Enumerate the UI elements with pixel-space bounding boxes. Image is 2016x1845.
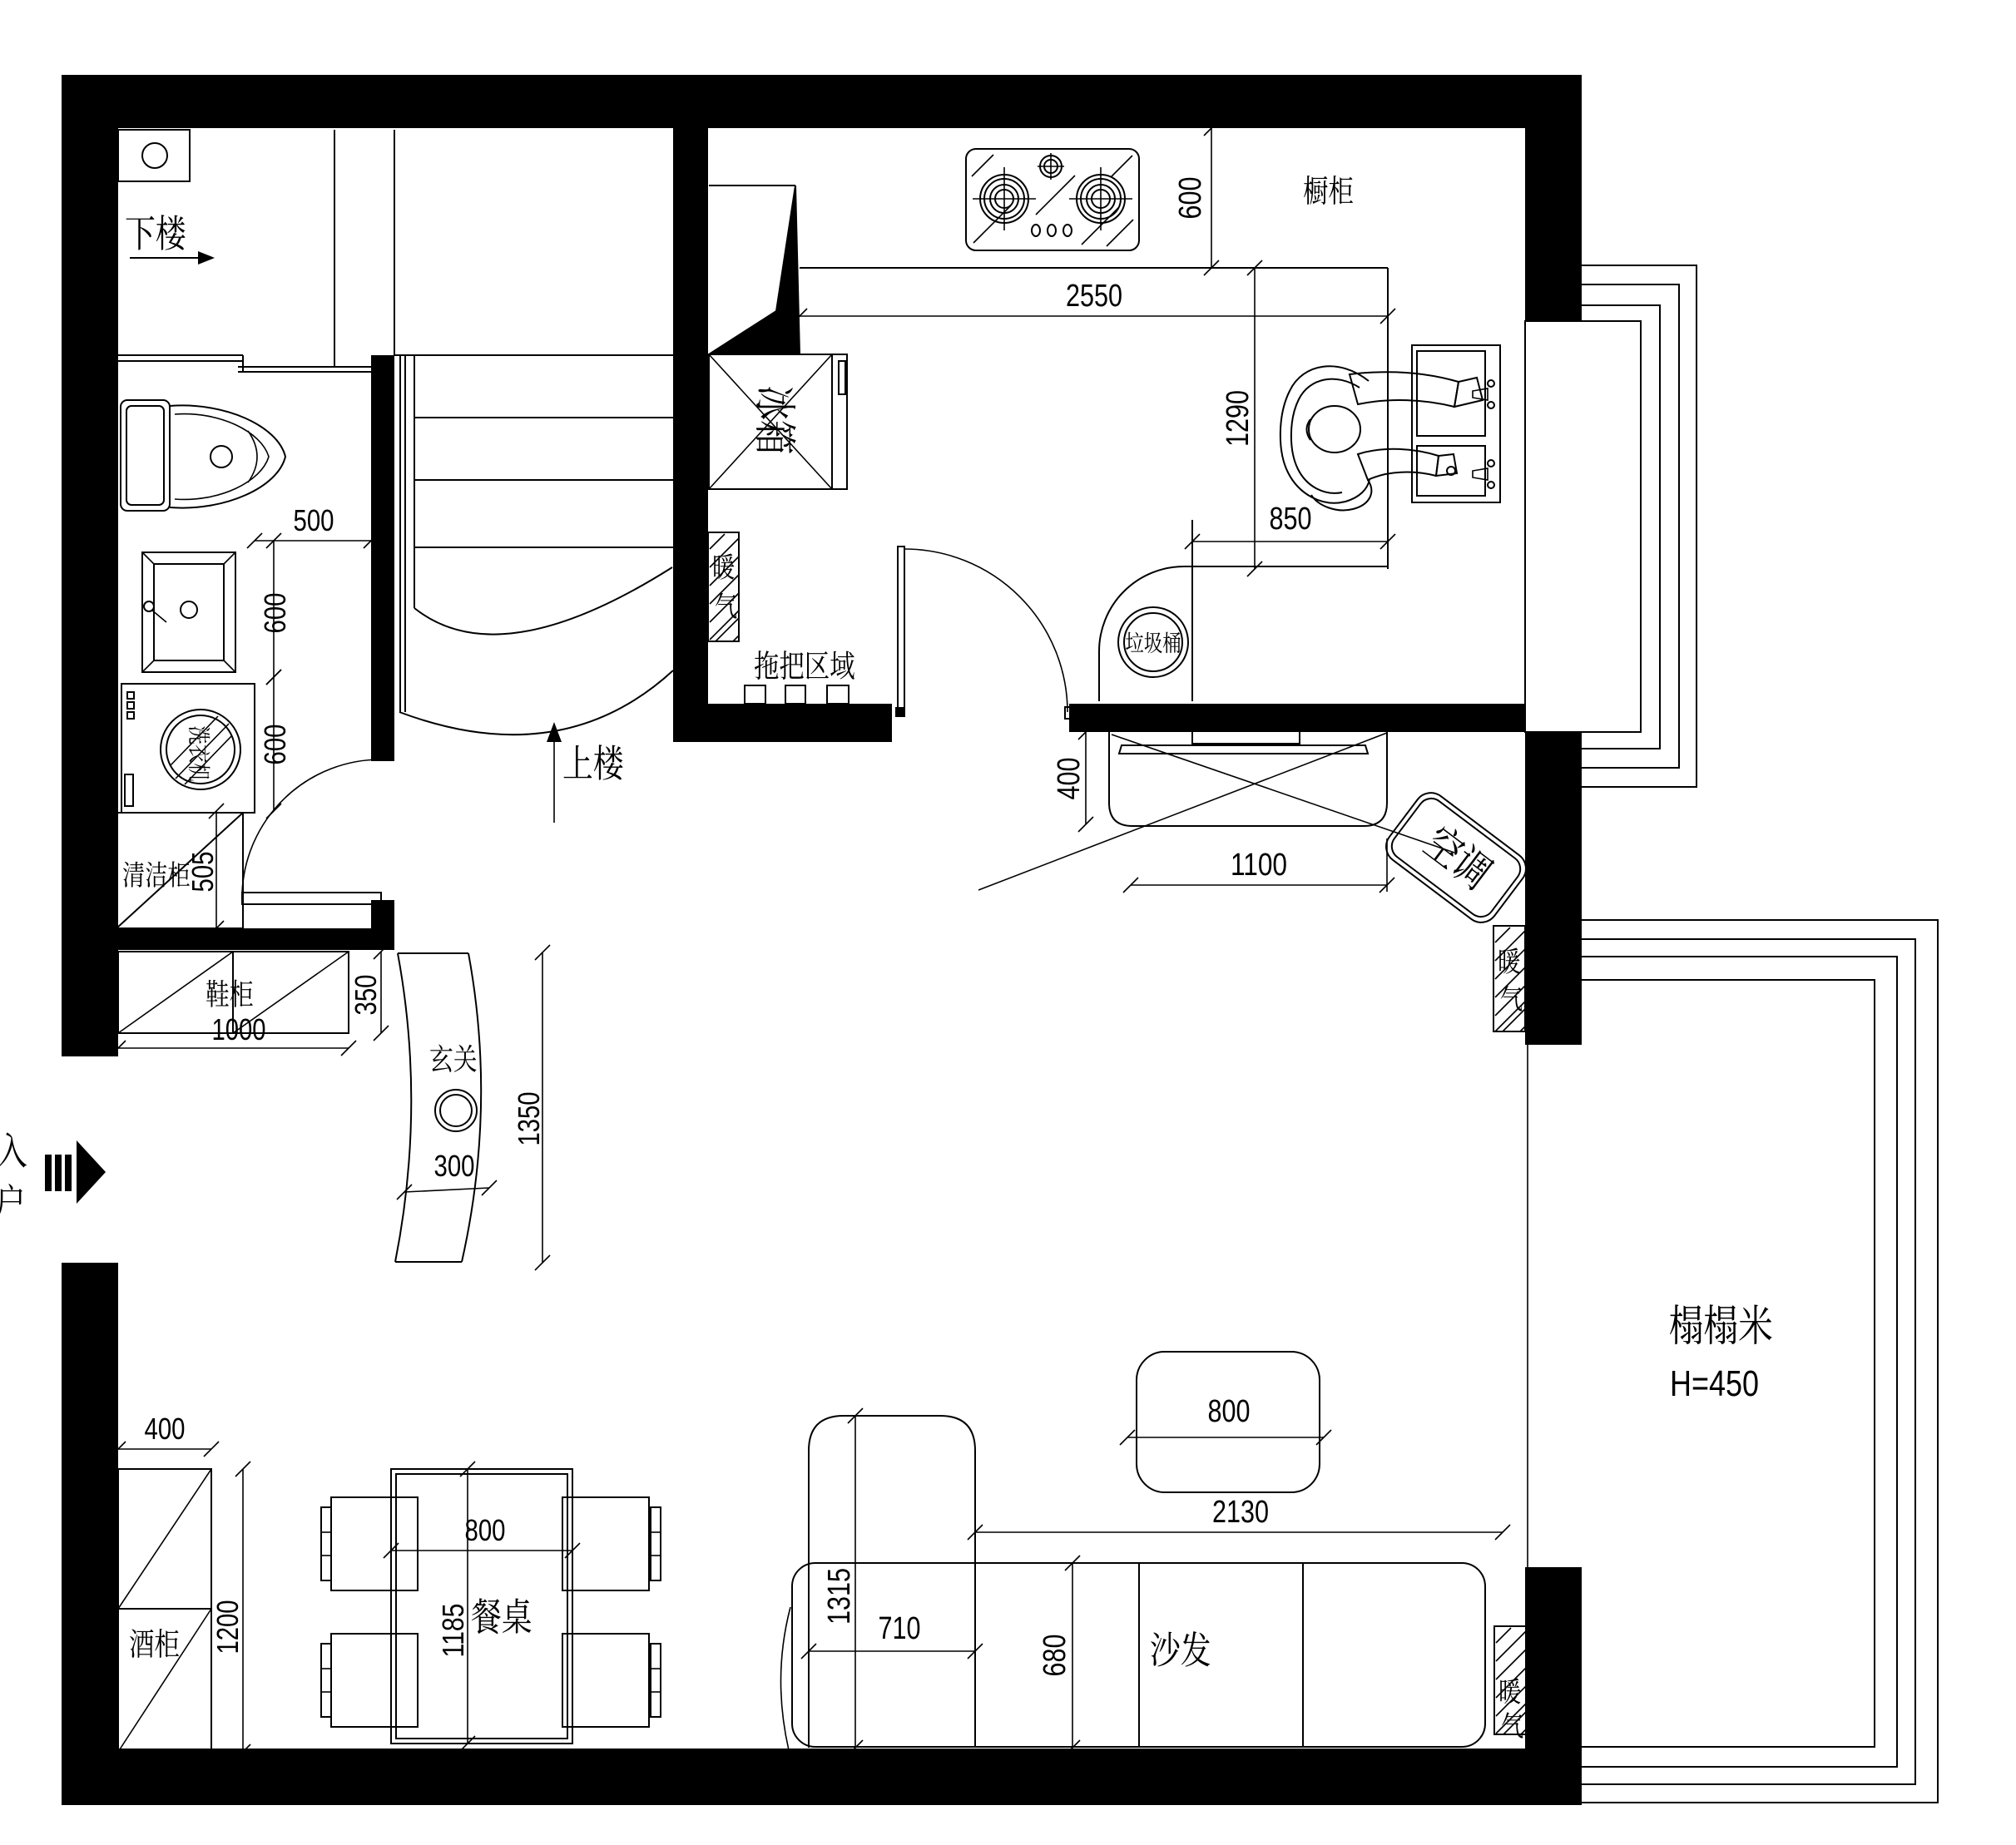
svg-text:800: 800 [1208, 1394, 1251, 1429]
svg-text:300: 300 [434, 1149, 475, 1183]
svg-text:850: 850 [1270, 502, 1312, 537]
svg-text:400: 400 [1052, 758, 1087, 800]
svg-text:600: 600 [258, 725, 292, 765]
svg-text:1315: 1315 [822, 1568, 857, 1625]
svg-text:350: 350 [349, 975, 383, 1016]
svg-text:505: 505 [186, 852, 220, 893]
svg-text:1100: 1100 [1231, 848, 1287, 883]
svg-text:2550: 2550 [1066, 279, 1122, 314]
svg-text:800: 800 [465, 1513, 506, 1547]
svg-text:1200: 1200 [211, 1600, 245, 1655]
svg-text:600: 600 [1173, 177, 1208, 220]
svg-text:1290: 1290 [1221, 390, 1256, 447]
svg-text:680: 680 [1038, 1635, 1072, 1677]
svg-text:1350: 1350 [512, 1092, 546, 1146]
svg-text:2130: 2130 [1212, 1495, 1269, 1530]
svg-text:710: 710 [879, 1611, 921, 1646]
svg-text:500: 500 [294, 503, 334, 537]
svg-text:H=450: H=450 [1670, 1363, 1759, 1404]
svg-text:1000: 1000 [212, 1012, 266, 1046]
svg-text:400: 400 [145, 1412, 186, 1446]
svg-text:1185: 1185 [436, 1604, 470, 1658]
svg-text:600: 600 [258, 593, 292, 634]
